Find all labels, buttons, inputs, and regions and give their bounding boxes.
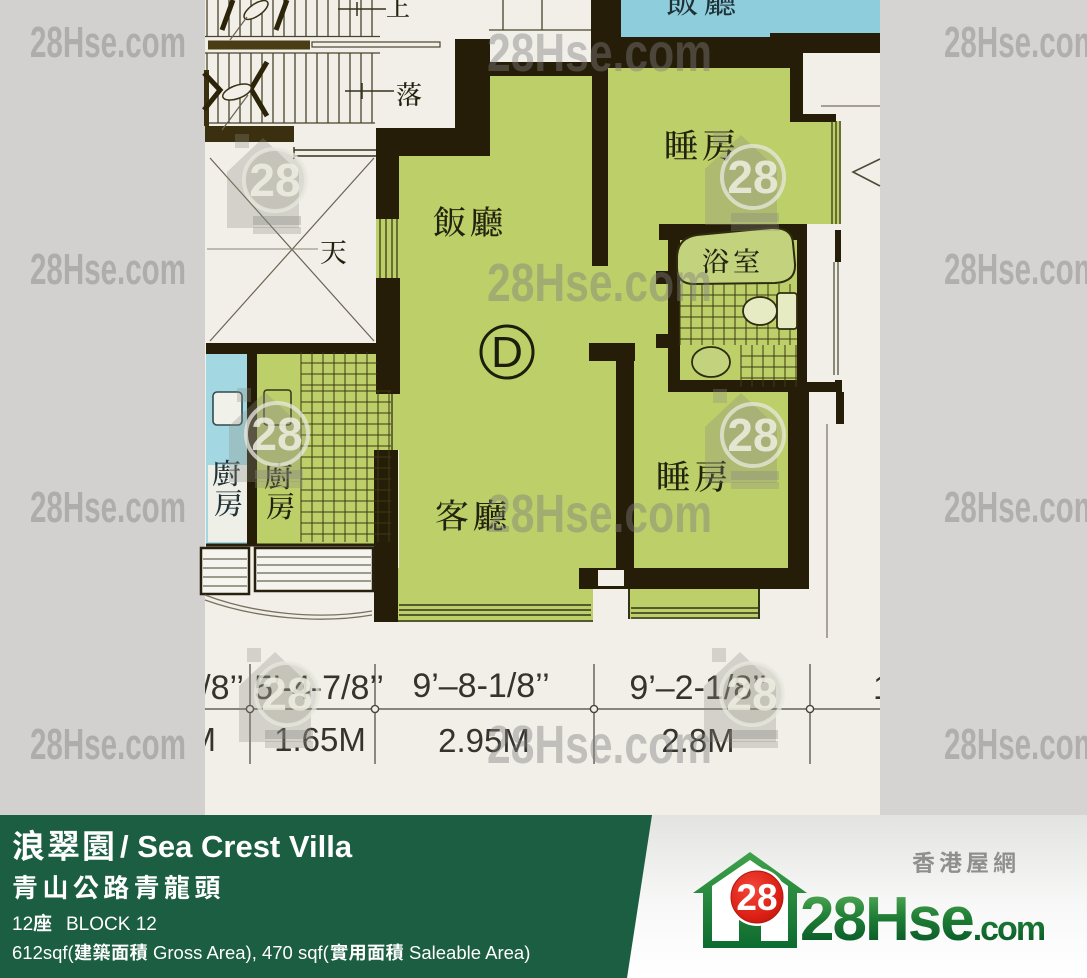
svg-text:Gross Area), 470 sqf(: Gross Area), 470 sqf( — [153, 942, 330, 963]
svg-text:28Hse.com: 28Hse.com — [944, 483, 1087, 532]
svg-text:28Hse.com: 28Hse.com — [487, 484, 712, 544]
svg-text:28Hse.com: 28Hse.com — [487, 715, 712, 775]
svg-text:Saleable Area): Saleable Area) — [409, 942, 530, 963]
svg-text:28Hse.com: 28Hse.com — [944, 720, 1087, 769]
svg-text:28: 28 — [736, 877, 777, 918]
svg-text:28Hse.com: 28Hse.com — [30, 483, 186, 532]
svg-text:28Hse.com: 28Hse.com — [487, 23, 712, 83]
svg-text:28Hse.com: 28Hse.com — [30, 18, 186, 67]
svg-text:612sqf(: 612sqf( — [12, 942, 75, 963]
svg-text:28Hse.com: 28Hse.com — [30, 720, 186, 769]
svg-text:28Hse.com: 28Hse.com — [944, 245, 1087, 294]
svg-text:BLOCK 12: BLOCK 12 — [66, 914, 157, 935]
svg-text:28Hse.com: 28Hse.com — [487, 253, 712, 313]
svg-text:/8’’: /8’’ — [201, 669, 244, 707]
svg-text:28Hse.com: 28Hse.com — [30, 245, 186, 294]
svg-text:D: D — [491, 328, 523, 377]
svg-text:/ Sea Crest Villa: / Sea Crest Villa — [120, 829, 353, 864]
svg-text:28Hse.com: 28Hse.com — [944, 18, 1087, 67]
svg-text:9’–8-1/8’’: 9’–8-1/8’’ — [412, 667, 549, 705]
svg-text:12: 12 — [12, 914, 33, 935]
